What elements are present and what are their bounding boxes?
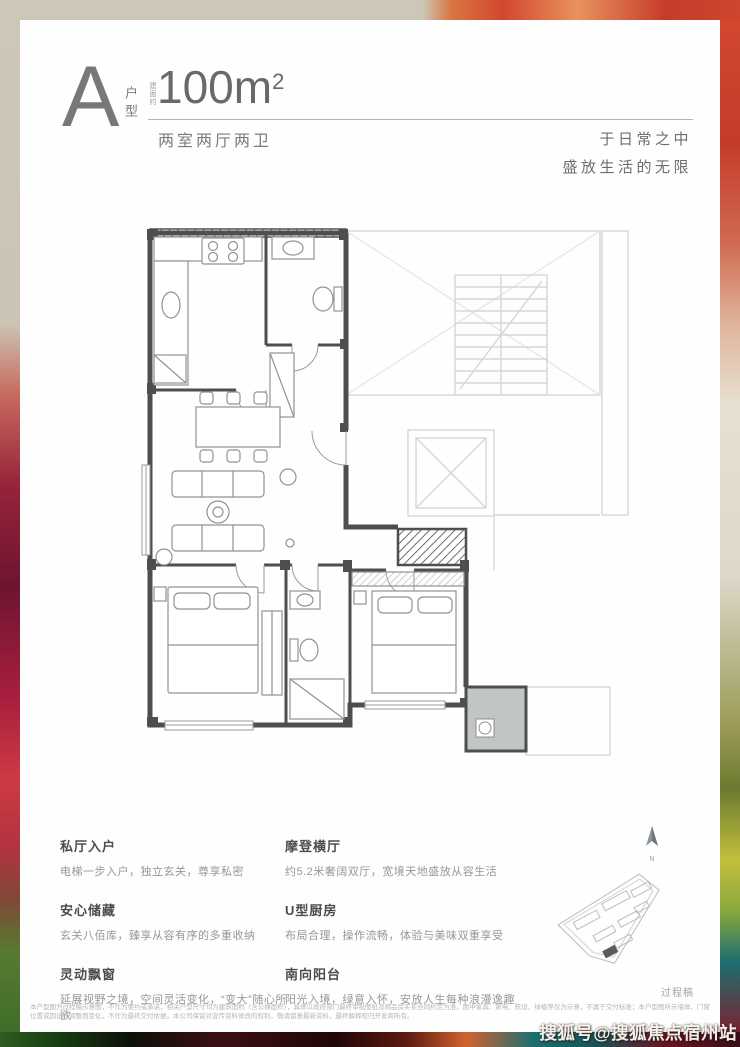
site-buildings — [570, 881, 657, 952]
area-exponent: 2 — [272, 69, 284, 94]
slogan-line-1: 于日常之中 — [562, 126, 692, 154]
nightstand — [354, 591, 366, 604]
feature-title: 摩登横厅 — [285, 836, 515, 855]
feature-title: U型厨房 — [285, 900, 515, 919]
feature-column-right: 摩登横厅 约5.2米奢阔双厅，宽境天地盛放从容生活 U型厨房 布局合理，操作流畅… — [285, 836, 515, 1028]
divider-line — [148, 119, 693, 120]
north-arrow-icon — [644, 826, 660, 850]
feature-desc: 电梯一步入户，独立玄关，尊享私密 — [60, 863, 290, 879]
balcony — [466, 687, 526, 751]
bedroom1 — [154, 587, 282, 695]
bathroom1 — [272, 237, 342, 311]
rooms-desc: 两室两厅两卫 — [158, 127, 272, 151]
bathroom2 — [290, 591, 344, 719]
kitchen-sink-icon — [162, 292, 180, 318]
feature-title: 私厅入户 — [60, 836, 290, 855]
page-root: A 户型 建面约 100m2 两室两厅两卫 于日常之中 盛放生活的无限 — [0, 0, 740, 1047]
compass: N — [642, 826, 662, 863]
unit-letter: A — [62, 54, 119, 140]
stove-icon — [202, 238, 244, 264]
plant-icon — [156, 549, 172, 565]
disclaimer-text: 本户型图为过程稿示意图，不作为要约或承诺，相关户型尺寸均为建筑面积（含公摊面积）… — [30, 1004, 710, 1021]
feature-item: U型厨房 布局合理，操作流畅，体验与美味双重享受 — [285, 900, 515, 943]
feature-desc: 约5.2米奢阔双厅，宽境天地盛放从容生活 — [285, 863, 515, 879]
toilet-icon — [334, 287, 342, 311]
draft-note: 过程稿 — [661, 984, 694, 999]
furniture — [154, 237, 464, 719]
slogan: 于日常之中 盛放生活的无限 — [562, 126, 692, 182]
plant-icon — [280, 469, 296, 485]
toilet-icon — [290, 639, 298, 661]
floor-plan — [140, 225, 630, 760]
feature-item: 安心储藏 玄关八佰库，臻享从容有序的多重收纳 — [60, 900, 290, 943]
unit-type-label: 户型 — [121, 86, 140, 122]
area-prefix-label: 建面约 — [147, 82, 157, 106]
closet-row — [352, 572, 464, 586]
background-art-top — [0, 0, 740, 20]
site-plan — [544, 860, 704, 980]
neighbour-balcony — [526, 687, 610, 755]
background-art-right — [720, 20, 740, 1032]
area-number: 100m — [157, 61, 272, 113]
flyer-sheet: A 户型 建面约 100m2 两室两厅两卫 于日常之中 盛放生活的无限 — [20, 20, 720, 1032]
feature-desc: 布局合理，操作流畅，体验与美味双重享受 — [285, 927, 515, 943]
background-art-left — [0, 20, 20, 1032]
slogan-line-2: 盛放生活的无限 — [562, 154, 692, 182]
sofa — [172, 525, 264, 551]
feature-item: 南向阳台 阳光入境，绿意入怀，安放人生每种浪漫逸趣 — [285, 964, 515, 1007]
feature-item: 摩登横厅 约5.2米奢阔双厅，宽境天地盛放从容生活 — [285, 836, 515, 879]
feature-desc: 玄关八佰库，臻享从容有序的多重收纳 — [60, 927, 290, 943]
sofa — [172, 471, 264, 497]
duct-shaft — [398, 529, 466, 565]
dining-table — [196, 392, 280, 462]
watermark: 搜狐号@搜狐焦点宿州站 — [539, 1020, 737, 1045]
service-shaft — [602, 231, 628, 515]
elevator-shaft — [408, 430, 494, 516]
area-value: 100m2 — [157, 64, 284, 110]
feature-title: 安心储藏 — [60, 900, 290, 919]
staircase — [455, 275, 547, 395]
feature-title: 灵动飘窗 — [60, 964, 290, 983]
floor-lamp-icon — [286, 539, 294, 547]
feature-title: 南向阳台 — [285, 964, 515, 983]
nightstand — [154, 587, 166, 601]
bedroom2 — [352, 572, 464, 693]
living-room — [156, 469, 296, 565]
feature-item: 私厅入户 电梯一步入户，独立玄关，尊享私密 — [60, 836, 290, 879]
